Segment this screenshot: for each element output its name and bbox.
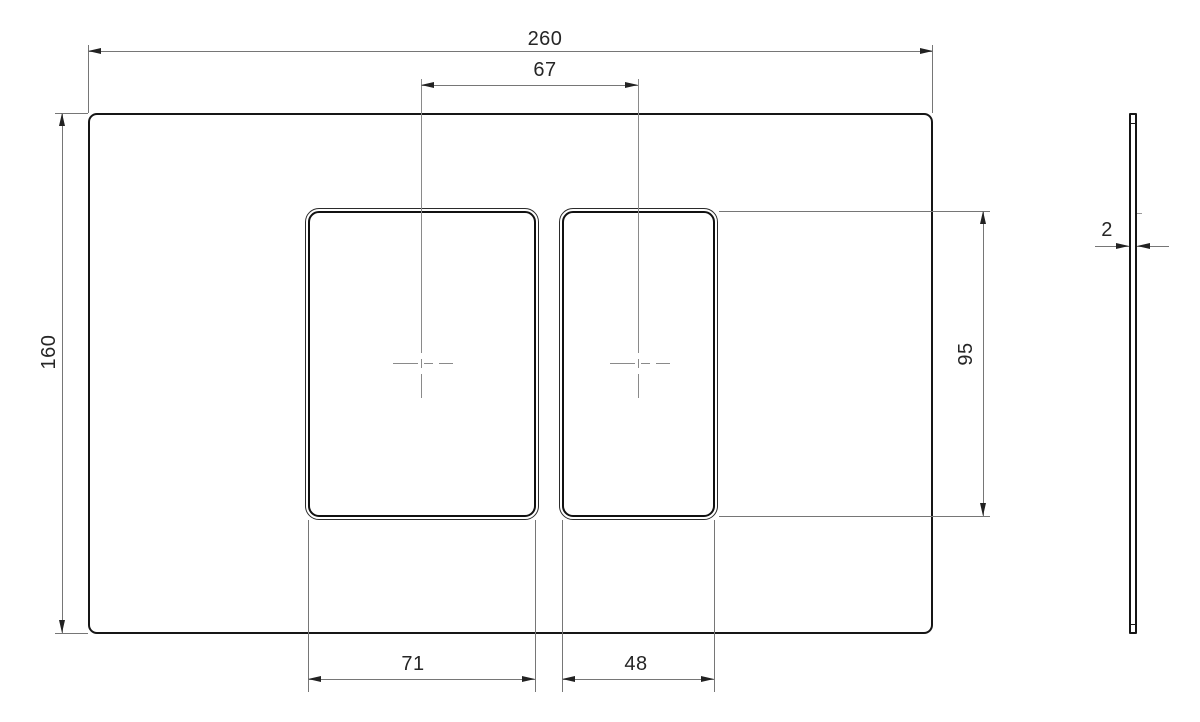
dim-overall-height-label: 160	[39, 335, 59, 370]
dim-left-cutout-width-label: 71	[401, 654, 424, 674]
arrowhead	[920, 48, 933, 54]
left-center-mark	[439, 363, 453, 364]
dimension-line	[983, 211, 984, 516]
extension-line	[535, 520, 536, 692]
arrowhead	[1116, 243, 1129, 249]
arrowhead	[980, 503, 986, 516]
right-centerline	[638, 79, 639, 353]
arrowhead	[980, 211, 986, 224]
arrowhead	[1137, 243, 1150, 249]
dim-overall-width-label: 260	[528, 29, 563, 49]
dim-thickness-label: 2	[1101, 220, 1113, 240]
arrowhead	[308, 676, 321, 682]
dimension-line	[421, 85, 638, 86]
arrowhead	[59, 620, 65, 633]
extension-line	[308, 520, 309, 692]
right-centerline-dash	[638, 359, 639, 368]
extension-line	[719, 516, 990, 517]
dimension-line	[308, 679, 536, 680]
right-center-mark	[641, 363, 650, 364]
left-centerline	[421, 79, 422, 353]
extension-line	[714, 520, 715, 692]
left-centerline-lower	[421, 374, 422, 398]
extension-line	[719, 211, 990, 212]
drawing-canvas: 260 67 160 95 71	[0, 0, 1200, 722]
arrowhead	[625, 82, 638, 88]
dimension-line	[88, 51, 933, 52]
left-center-mark	[393, 363, 418, 364]
dimension-line	[562, 679, 715, 680]
left-centerline-dash	[421, 359, 422, 368]
dim-right-cutout-width-label: 48	[624, 654, 647, 674]
arrowhead	[562, 676, 575, 682]
side-view-tangent-edge	[1137, 213, 1142, 214]
extension-line	[88, 45, 89, 113]
side-view-top-edge	[1129, 123, 1137, 124]
dim-center-distance-label: 67	[533, 60, 556, 80]
left-center-mark	[424, 363, 433, 364]
right-centerline-lower	[638, 374, 639, 398]
right-center-mark	[610, 363, 635, 364]
arrowhead	[88, 48, 101, 54]
right-center-mark	[656, 363, 670, 364]
dim-cutout-height-label: 95	[956, 342, 976, 365]
extension-line	[55, 633, 88, 634]
extension-line	[932, 45, 933, 113]
extension-line	[562, 520, 563, 692]
dimension-line	[62, 113, 63, 633]
left-cutout	[308, 211, 536, 517]
arrowhead	[59, 113, 65, 126]
side-view-bottom-edge	[1129, 624, 1137, 625]
arrowhead	[522, 676, 535, 682]
side-view-plate	[1129, 113, 1137, 634]
arrowhead	[701, 676, 714, 682]
arrowhead	[421, 82, 434, 88]
